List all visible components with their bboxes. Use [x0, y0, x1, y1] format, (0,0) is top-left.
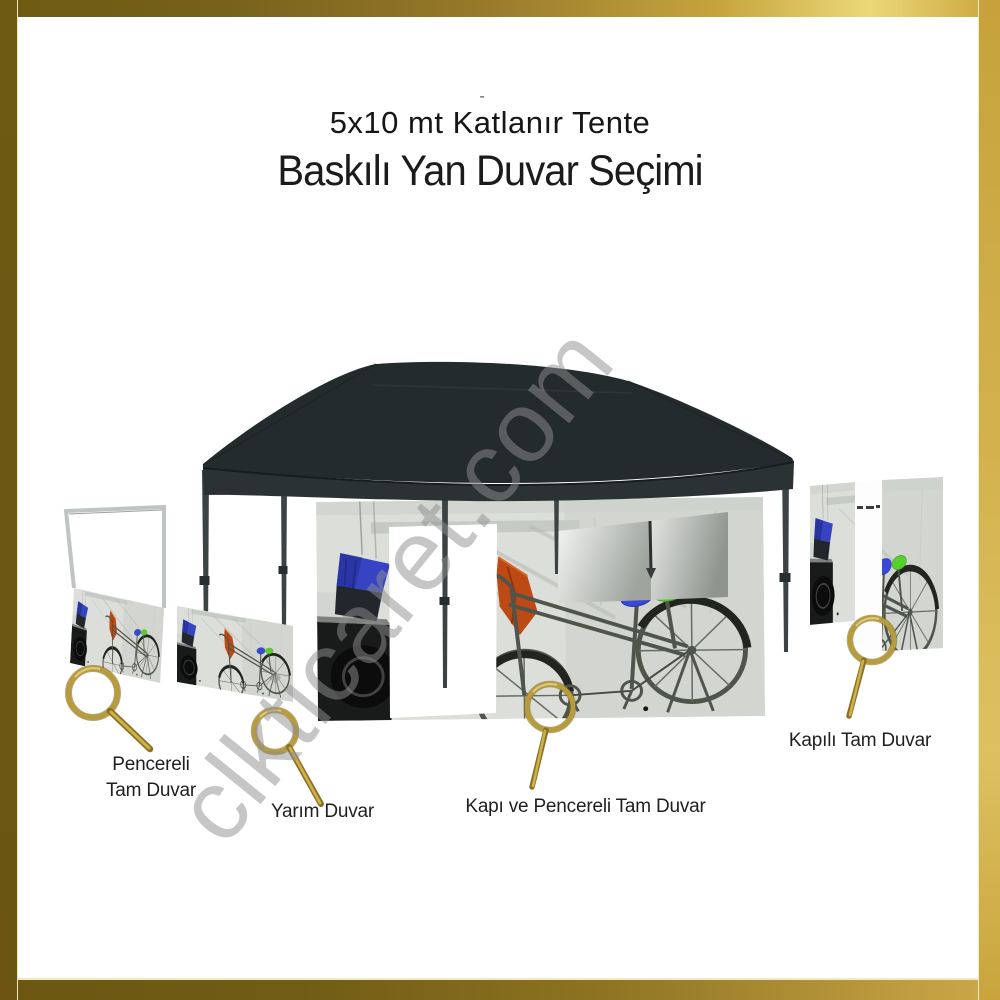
magnifier-icon — [69, 668, 151, 749]
tent-leg — [782, 462, 789, 652]
option-label-yarim-duvar: Yarım Duvar — [240, 799, 405, 825]
wall-panel-yarim — [177, 599, 294, 711]
wall-panel-pencereli — [66, 507, 165, 691]
product-image: - 5x10 mt Katlanır Tente Baskılı Yan Duv… — [0, 0, 1000, 1000]
option-label-kapi-ve-pencereli-tam-duvar: Kapı ve Pencereli Tam Duvar — [448, 794, 723, 820]
tent-illustration — [0, 0, 1000, 1000]
option-label-pencereli-tam-duvar: Pencereli Tam Duvar — [66, 752, 236, 804]
wall-panel-kapi-ve-pencereli — [316, 497, 765, 743]
tent-leg — [442, 490, 448, 688]
tent-leg — [281, 478, 287, 638]
magnifier-icon — [254, 710, 321, 804]
option-label-kapili-tam-duvar: Kapılı Tam Duvar — [770, 728, 950, 754]
tent-canopy — [203, 362, 794, 501]
